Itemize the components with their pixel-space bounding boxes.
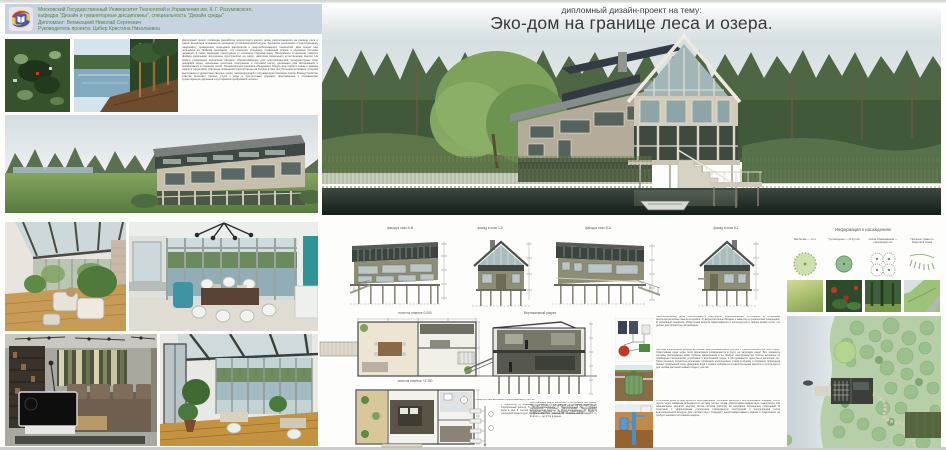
elevation-drawing-15 [470, 236, 532, 312]
project-intro-text: Дипломный проект посвящён разработке эко… [182, 39, 318, 112]
plant-photo-willow [787, 280, 823, 312]
plant-symbol-grass [904, 250, 940, 278]
plant-photo-pine-forest [865, 280, 901, 312]
project-title: Эко-дом на границе леса и озера. [322, 13, 941, 34]
floor-plan-level-0 [318, 318, 480, 380]
winter-garden-illustration [5, 222, 126, 331]
header-advisor-line: Руководитель проекта: Цибер Кристина Ник… [38, 26, 320, 33]
hero-render-lake-view [322, 8, 941, 215]
presentation-board: Московский Государственный Университет Т… [0, 0, 946, 450]
section-note-text: Вертикальный разрез выполнен по продольн… [530, 402, 597, 448]
elevation-51-label: фасад в осях 5-1 [690, 226, 762, 230]
lake-water [322, 188, 941, 215]
water-scheme-diagram [468, 404, 498, 448]
rowboat [640, 201, 690, 210]
plan-3300-label: план на отметке +3.300 [352, 379, 478, 383]
plant-symbol-willow [787, 250, 823, 278]
dining-room-illustration [129, 222, 318, 331]
elevation-ba-label: фасад в осях В-А [550, 226, 646, 230]
forest-lake-illustration [74, 39, 178, 112]
plant-label-thuja: Туя западная — 10 кустов [826, 238, 862, 248]
header-department-line: кафедра "Дизайн и гуманитарные дисциплин… [38, 13, 320, 20]
plant-label-willow: Ива белая — 1 шт. [787, 238, 823, 248]
site-plan [787, 316, 941, 448]
forest-lake-photo [74, 39, 178, 112]
university-logo [9, 7, 33, 31]
eco-text-septic: Система канализации решена на основе эне… [656, 349, 780, 397]
plant-photo-thuja [826, 280, 862, 312]
plan-0-label: план на отметке 0.000 [352, 311, 478, 315]
elevation-drawing-51 [696, 236, 760, 312]
interior-render-winter-garden [5, 222, 126, 331]
planting-legend-title: Информация о насаждениях [787, 227, 939, 232]
eco-text-geothermal: Отопление дома осуществляется геотермаль… [656, 400, 780, 448]
site-plan-parking [905, 412, 941, 438]
section-drawing [465, 318, 597, 400]
living-room-illustration [5, 334, 157, 446]
plant-symbol-pine-cluster [865, 250, 901, 278]
board-top-edge [0, 0, 946, 3]
tv-console [19, 392, 77, 434]
elevation-15-label: фасад в осях 1-5 [455, 226, 525, 230]
plant-photo-grass-shore [904, 280, 940, 312]
birch-wall-art [57, 350, 127, 386]
desk [220, 412, 248, 422]
elevation-drawing-ba [552, 236, 664, 312]
university-header: Московский Государственный Университет Т… [5, 4, 322, 34]
header-text: Московский Государственный Университет Т… [38, 7, 320, 33]
interior-render-sunroom [160, 334, 318, 446]
satellite-map-photo [5, 39, 70, 112]
interior-render-living-room [5, 334, 157, 446]
lawn-render-illustration [5, 115, 318, 213]
plant-label-grass: Газонные травы по береговой линии [904, 238, 940, 248]
eco-text-energy: Энергоснабжение дома обеспечивается комп… [656, 316, 780, 346]
geothermal-diagram [615, 404, 653, 448]
section-label: Вертикальный разрез [480, 311, 600, 315]
solar-system-diagram [615, 318, 653, 362]
exterior-render-lawn-view [5, 115, 318, 213]
elevation-ab-label: фасад в осях А-В [352, 226, 448, 230]
header-student-line: Дипломант: Великоцкий Николай Сергеевич [38, 20, 320, 27]
plant-label-pine: Сосна обыкновенная — смешанный лес [865, 238, 901, 248]
elevation-drawing-ab [350, 236, 450, 312]
interior-render-dining-room [129, 222, 318, 331]
floor-plan-level-3300 [352, 386, 480, 448]
teal-armchair [173, 282, 193, 308]
satellite-map-illustration [5, 39, 70, 112]
site-plan-willow [834, 341, 856, 363]
plant-symbol-thuja [826, 250, 862, 278]
septic-tank-diagram [615, 365, 653, 401]
sunroom-illustration [160, 334, 318, 446]
